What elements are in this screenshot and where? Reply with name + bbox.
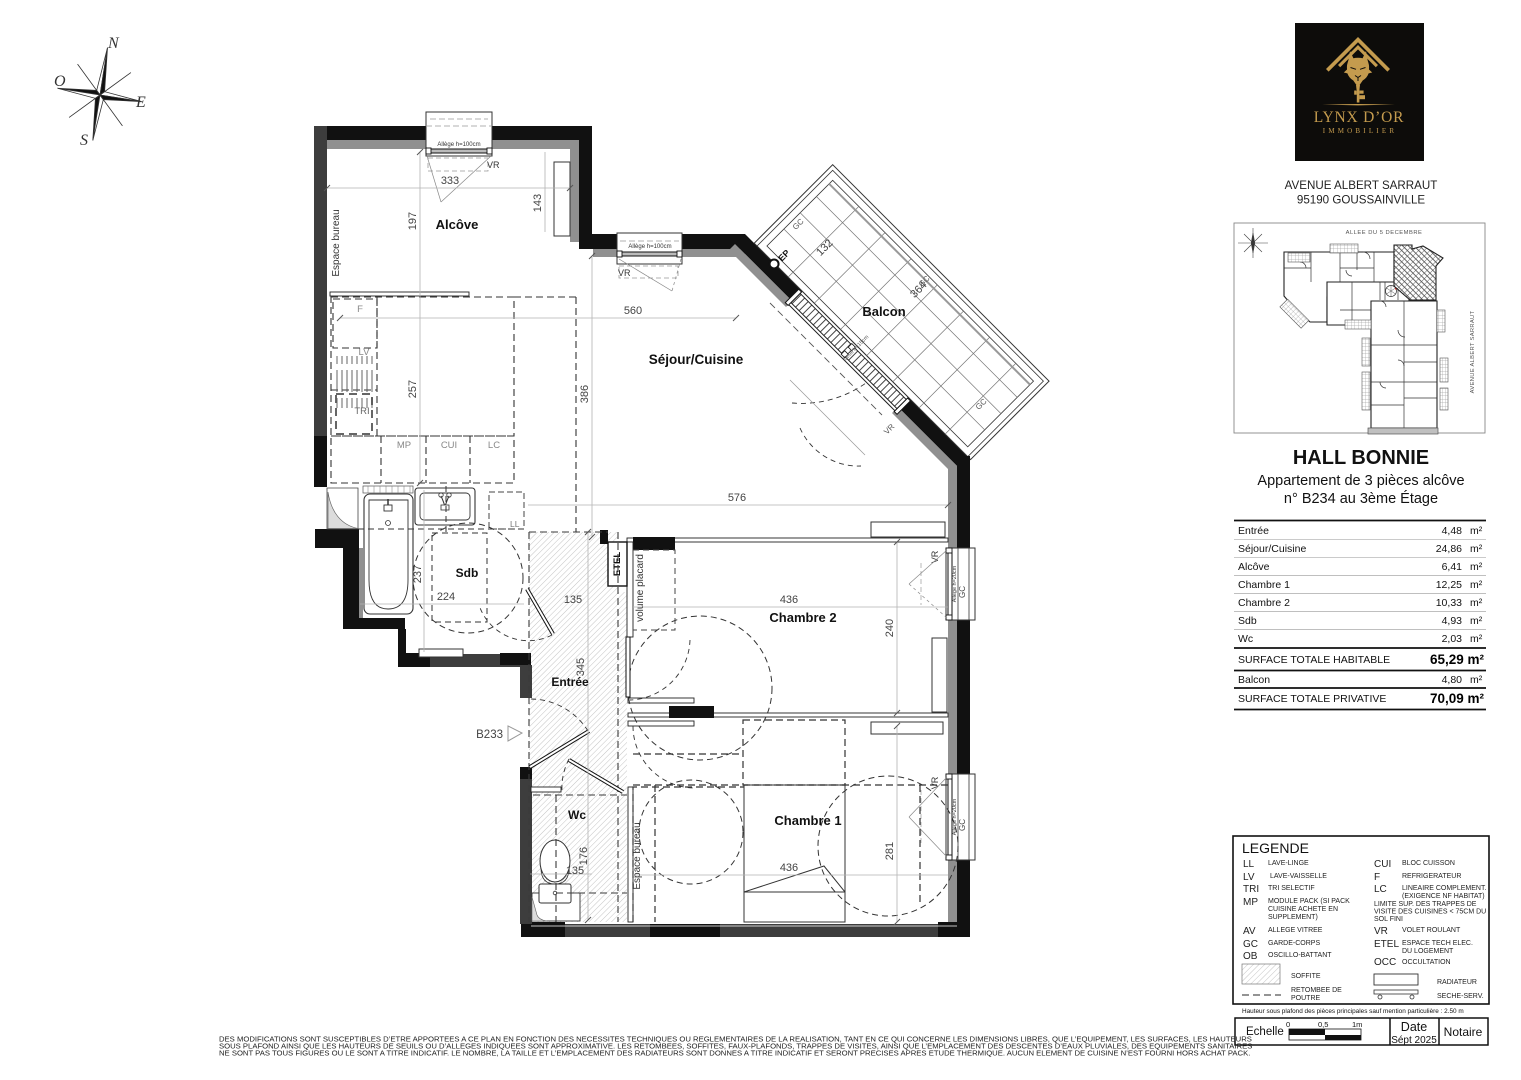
svg-text:6,41: 6,41 (1442, 561, 1463, 573)
svg-text:VR: VR (930, 550, 940, 563)
svg-text:F: F (357, 304, 363, 315)
svg-text:Date: Date (1401, 1020, 1427, 1034)
svg-text:Sdb: Sdb (1238, 615, 1257, 627)
svg-text:MODULE PACK (SI PACK: MODULE PACK (SI PACK (1268, 898, 1350, 905)
svg-text:224: 224 (437, 591, 455, 603)
svg-text:AV: AV (1243, 926, 1256, 937)
svg-text:Chambre 2: Chambre 2 (769, 610, 836, 625)
svg-text:Notaire: Notaire (1444, 1025, 1483, 1039)
svg-text:Espace bureau: Espace bureau (331, 209, 342, 276)
svg-text:436: 436 (780, 862, 798, 874)
svg-text:345: 345 (575, 658, 587, 676)
svg-text:176: 176 (578, 847, 590, 865)
svg-text:Balcon: Balcon (862, 304, 905, 319)
svg-text:333: 333 (441, 175, 459, 187)
svg-text:Hauteur sous plafond des pièce: Hauteur sous plafond des pièces principa… (1242, 1008, 1464, 1015)
svg-text:197: 197 (407, 212, 419, 230)
svg-text:10,33: 10,33 (1436, 597, 1462, 609)
svg-text:4,48: 4,48 (1442, 525, 1463, 537)
svg-text:LAVE-LINGE: LAVE-LINGE (1268, 860, 1309, 867)
svg-text:VR: VR (618, 268, 631, 278)
svg-text:0,5: 0,5 (1318, 1020, 1328, 1029)
svg-text:m²: m² (1470, 579, 1483, 591)
svg-text:ALLEE DU 5 DECEMBRE: ALLEE DU 5 DECEMBRE (1346, 230, 1423, 236)
svg-text:m²: m² (1470, 525, 1483, 537)
svg-text:OCCULTATION: OCCULTATION (1402, 959, 1451, 966)
svg-text:VOLET ROULANT: VOLET ROULANT (1402, 927, 1461, 934)
svg-text:386: 386 (579, 385, 591, 403)
svg-text:F: F (1374, 872, 1380, 883)
svg-text:12,25: 12,25 (1436, 579, 1462, 591)
svg-text:CUI: CUI (441, 440, 457, 451)
svg-text:70,09 m²: 70,09 m² (1430, 691, 1485, 706)
svg-text:LL: LL (1243, 859, 1255, 870)
svg-text:135: 135 (564, 594, 582, 606)
svg-text:AVENUE ALBERT SARRAUT: AVENUE ALBERT SARRAUT (1285, 179, 1438, 192)
svg-text:GC: GC (1243, 939, 1258, 950)
svg-text:Wc: Wc (568, 808, 586, 822)
svg-text:143: 143 (532, 194, 544, 212)
svg-text:ALLEGE VITREE: ALLEGE VITREE (1268, 927, 1323, 934)
svg-text:LV: LV (1243, 872, 1255, 883)
svg-text:LAVE-VAISSELLE: LAVE-VAISSELLE (1270, 873, 1327, 880)
svg-text:560: 560 (624, 305, 642, 317)
svg-text:O: O (54, 73, 66, 90)
svg-text:135: 135 (566, 865, 584, 877)
svg-text:0: 0 (1286, 1020, 1290, 1029)
svg-text:Sdb: Sdb (456, 566, 479, 580)
svg-text:BLOC CUISSON: BLOC CUISSON (1402, 860, 1455, 867)
svg-text:LYNX D’OR: LYNX D’OR (1314, 109, 1404, 126)
svg-text:LINEAIRE COMPLEMENT.: LINEAIRE COMPLEMENT. (1402, 885, 1486, 892)
svg-text:Appartement de 3 pièces alcôve: Appartement de 3 pièces alcôve (1257, 473, 1464, 489)
svg-text:65,29 m²: 65,29 m² (1430, 652, 1485, 667)
svg-text:95190 GOUSSAINVILLE: 95190 GOUSSAINVILLE (1297, 194, 1426, 207)
svg-text:LL: LL (510, 519, 520, 529)
svg-text:RADIATEUR: RADIATEUR (1437, 979, 1477, 986)
svg-text:OB: OB (1243, 951, 1258, 962)
svg-text:IMMOBILIER: IMMOBILIER (1323, 127, 1397, 135)
svg-text:MP: MP (1243, 897, 1258, 908)
svg-text:ETEL: ETEL (1374, 939, 1399, 950)
svg-text:Alcôve: Alcôve (1238, 561, 1270, 573)
svg-text:24,86: 24,86 (1436, 543, 1462, 555)
svg-text:Chambre 1: Chambre 1 (774, 813, 841, 828)
svg-text:m²: m² (1470, 561, 1483, 573)
svg-text:CUI: CUI (1374, 859, 1391, 870)
svg-text:B233: B233 (476, 729, 503, 741)
svg-text:Sépt 2025: Sépt 2025 (1391, 1035, 1437, 1046)
svg-text:n° B234 au 3ème Étage: n° B234 au 3ème Étage (1284, 490, 1438, 507)
svg-text:Séjour/Cuisine: Séjour/Cuisine (1238, 543, 1306, 555)
svg-text:Chambre 2: Chambre 2 (1238, 597, 1290, 609)
svg-text:Balcon: Balcon (1238, 674, 1270, 686)
svg-text:LC: LC (1374, 884, 1387, 895)
svg-text:Entrée: Entrée (1238, 525, 1269, 537)
svg-text:ESPACE TECH ELEC.: ESPACE TECH ELEC. (1402, 940, 1473, 947)
svg-text:m²: m² (1470, 615, 1483, 627)
svg-text:SOL FINI: SOL FINI (1374, 916, 1403, 923)
svg-text:CUISINE ACHETE EN: CUISINE ACHETE EN (1268, 906, 1338, 913)
svg-text:E: E (135, 94, 146, 111)
svg-text:SECHE-SERV.: SECHE-SERV. (1437, 993, 1484, 1000)
svg-text:240: 240 (884, 619, 896, 637)
svg-text:(EXIGENCE NF HABITAT): (EXIGENCE NF HABITAT) (1402, 893, 1485, 900)
svg-text:MP: MP (397, 440, 411, 451)
svg-text:TRI: TRI (1243, 884, 1259, 895)
svg-text:m²: m² (1470, 543, 1483, 555)
svg-text:VR: VR (487, 160, 500, 170)
svg-text:1m: 1m (1352, 1020, 1362, 1029)
svg-text:m²: m² (1470, 597, 1483, 609)
svg-text:281: 281 (884, 842, 896, 860)
svg-text:m²: m² (1470, 674, 1483, 686)
svg-text:LC: LC (488, 440, 500, 451)
svg-text:Allège h=100cm: Allège h=100cm (437, 142, 480, 148)
svg-text:N: N (107, 35, 120, 52)
svg-text:VR: VR (930, 776, 940, 789)
svg-text:Entrée: Entrée (551, 675, 589, 689)
svg-text:AVENUE ALBERT SARRAUT: AVENUE ALBERT SARRAUT (1470, 311, 1476, 394)
svg-text:LV: LV (359, 347, 371, 358)
svg-text:OSCILLO-BATTANT: OSCILLO-BATTANT (1268, 952, 1332, 959)
svg-text:SURFACE TOTALE HABITABLE: SURFACE TOTALE HABITABLE (1238, 654, 1390, 666)
svg-text:Séjour/Cuisine: Séjour/Cuisine (649, 352, 744, 367)
svg-text:HALL BONNIE: HALL BONNIE (1293, 447, 1429, 469)
svg-text:GC: GC (958, 586, 967, 598)
svg-text:SUPPLEMENT): SUPPLEMENT) (1268, 914, 1318, 921)
svg-text:LIMITE SUP. DES TRAPPES DE: LIMITE SUP. DES TRAPPES DE (1374, 901, 1477, 908)
svg-text:237: 237 (412, 565, 424, 583)
svg-text:S: S (80, 132, 88, 149)
svg-text:Espace bureau: Espace bureau (632, 822, 643, 889)
svg-text:Allège h=100cm: Allège h=100cm (628, 244, 671, 250)
svg-text:576: 576 (728, 492, 746, 504)
svg-text:SURFACE TOTALE PRIVATIVE: SURFACE TOTALE PRIVATIVE (1238, 693, 1386, 705)
svg-text:2,03: 2,03 (1442, 633, 1463, 645)
svg-text:VR: VR (1374, 926, 1388, 937)
svg-text:436: 436 (780, 594, 798, 606)
svg-text:GARDE-CORPS: GARDE-CORPS (1268, 940, 1320, 947)
svg-text:TRI: TRI (354, 406, 369, 417)
svg-text:REFRIGERATEUR: REFRIGERATEUR (1402, 873, 1461, 880)
svg-text:257: 257 (407, 380, 419, 398)
svg-text:POUTRE: POUTRE (1291, 995, 1321, 1002)
svg-text:NE SONT PAS TOUS FIGURES OU LE: NE SONT PAS TOUS FIGURES OU LE SONT A TI… (219, 1049, 1250, 1058)
svg-text:OCC: OCC (1374, 957, 1396, 968)
svg-text:RETOMBEE DE: RETOMBEE DE (1291, 987, 1342, 994)
svg-text:4,93: 4,93 (1442, 615, 1463, 627)
svg-text:volume placard: volume placard (635, 554, 646, 622)
svg-text:4,80: 4,80 (1442, 674, 1463, 686)
svg-text:Chambre 1: Chambre 1 (1238, 579, 1290, 591)
svg-text:DU LOGEMENT: DU LOGEMENT (1402, 948, 1454, 955)
svg-text:VISITE DES CUISINES < 75CM DU: VISITE DES CUISINES < 75CM DU (1374, 909, 1486, 916)
svg-text:TRI SELECTIF: TRI SELECTIF (1268, 885, 1315, 892)
svg-text:Wc: Wc (1238, 633, 1253, 645)
svg-text:GC: GC (958, 819, 967, 831)
svg-text:LEGENDE: LEGENDE (1242, 840, 1309, 856)
svg-text:Alcôve: Alcôve (436, 217, 479, 232)
svg-text:m²: m² (1470, 633, 1483, 645)
svg-text:SOFFITE: SOFFITE (1291, 973, 1321, 980)
